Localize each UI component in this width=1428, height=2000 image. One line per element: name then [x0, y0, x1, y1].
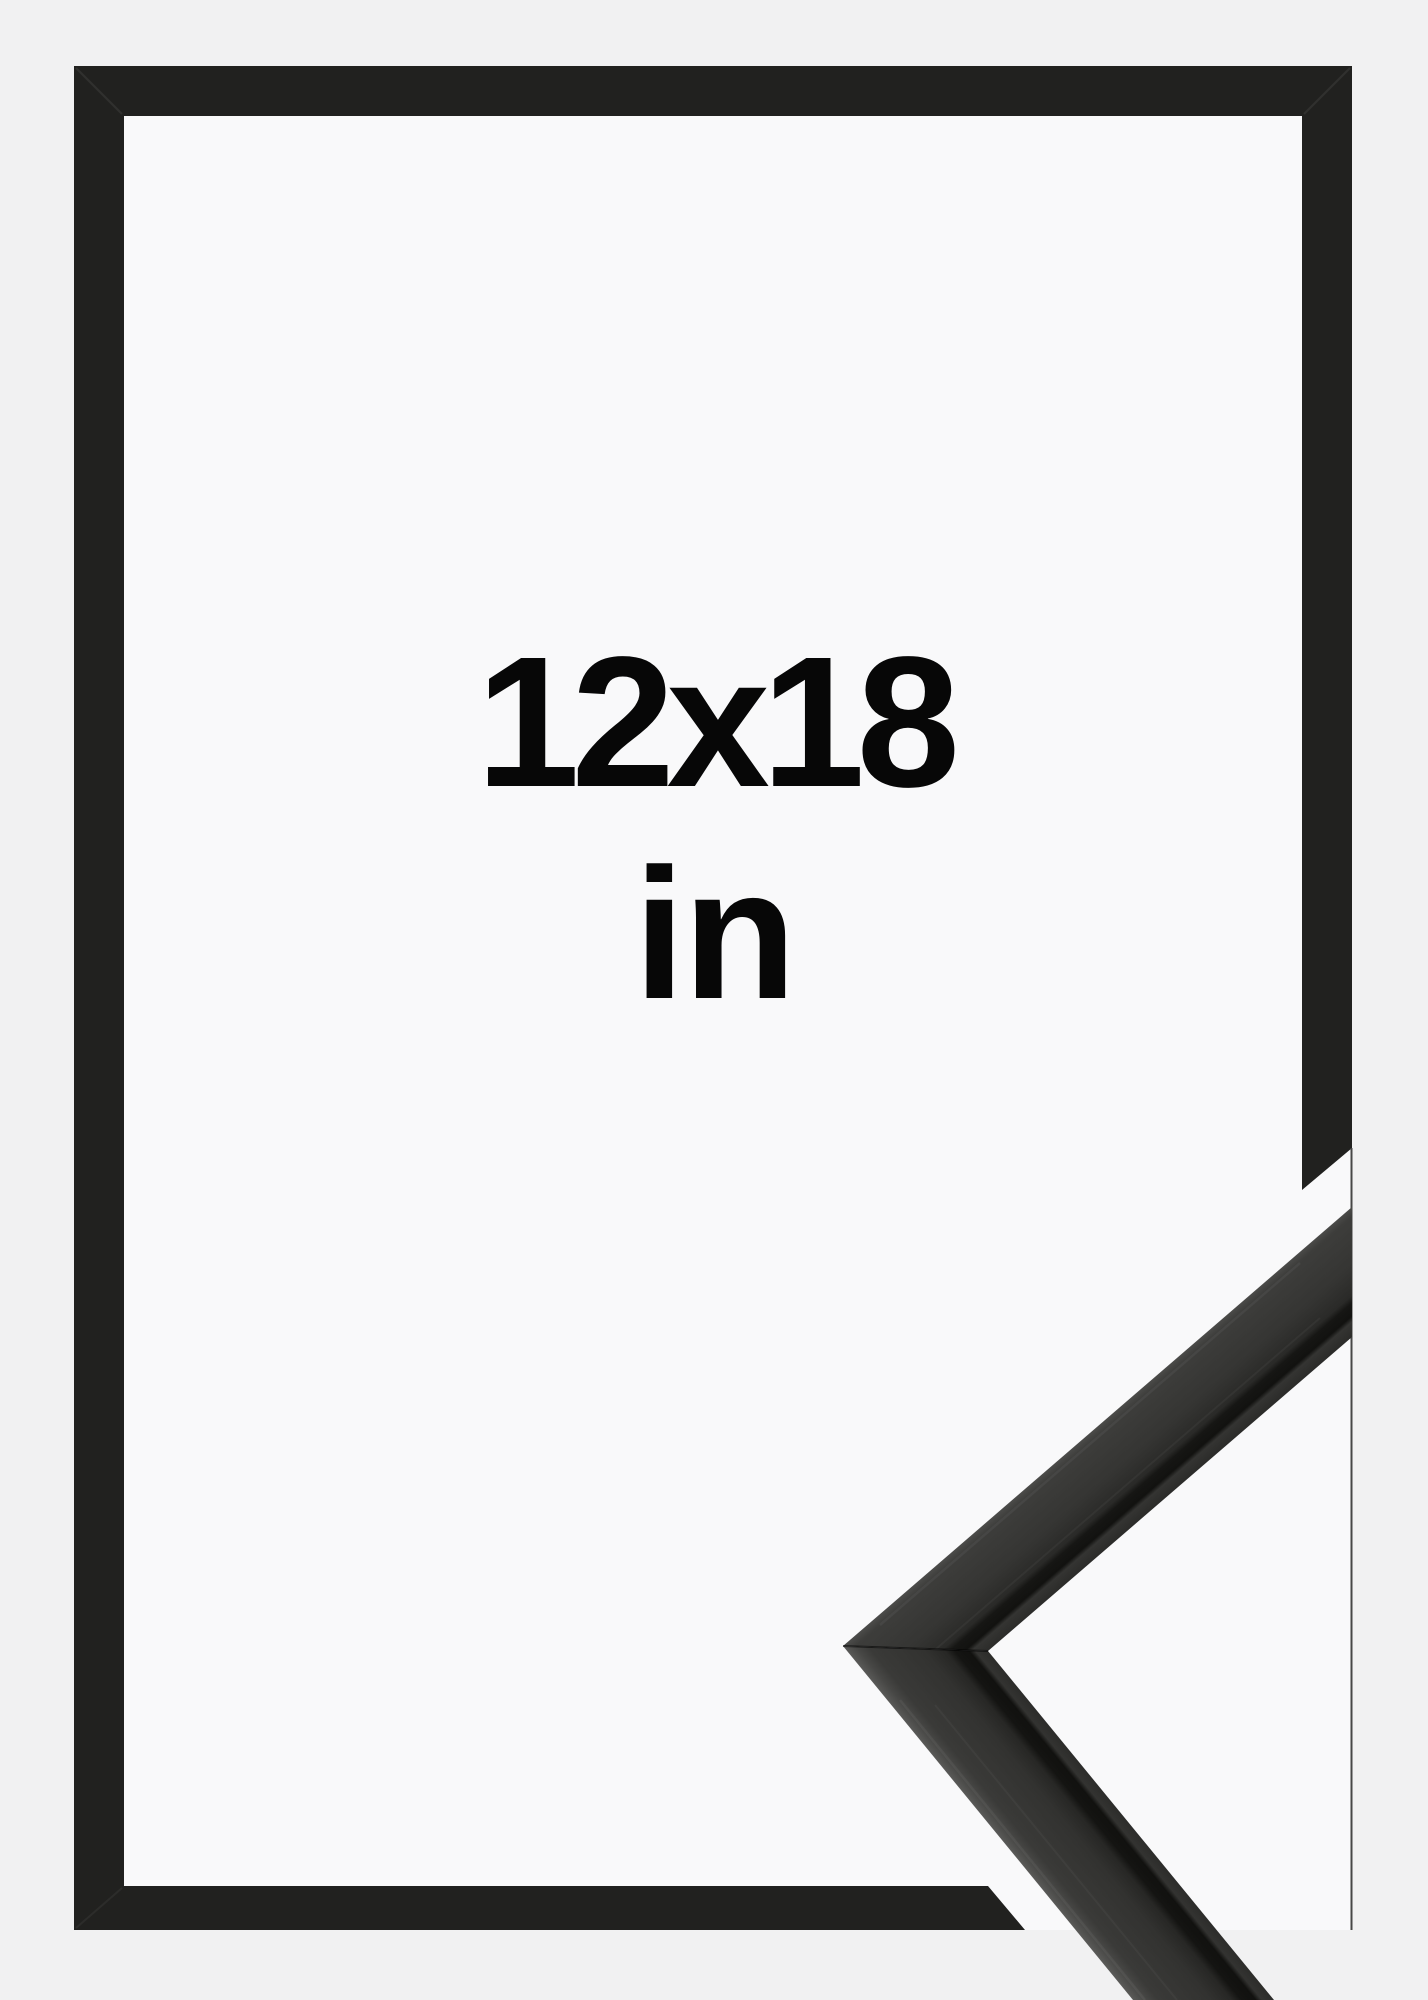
paper-area: [74, 66, 1352, 1930]
frame-graphic: [0, 0, 1428, 2000]
product-image: 12x18 in: [0, 0, 1428, 2000]
